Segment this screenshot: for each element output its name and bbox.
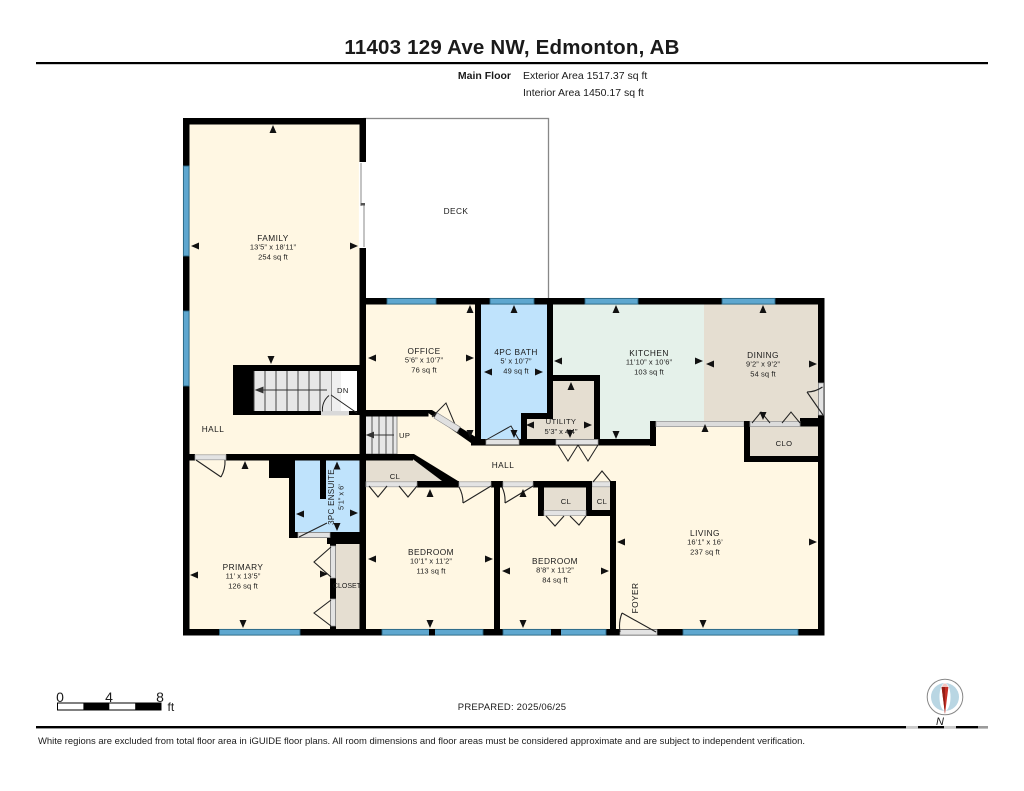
svg-text:16’1” x 16’: 16’1” x 16’: [687, 538, 723, 547]
svg-text:BEDROOM: BEDROOM: [532, 556, 578, 566]
svg-text:8’8” x 11’2”: 8’8” x 11’2”: [536, 566, 574, 575]
svg-text:11403 129 Ave NW, Edmonton, AB: 11403 129 Ave NW, Edmonton, AB: [344, 36, 679, 59]
svg-text:DN: DN: [337, 386, 349, 395]
svg-text:11’ x 13’5”: 11’ x 13’5”: [226, 572, 261, 581]
svg-text:Main Floor: Main Floor: [458, 70, 511, 82]
svg-text:CL: CL: [390, 472, 400, 481]
svg-text:126 sq ft: 126 sq ft: [228, 582, 258, 591]
svg-text:10’1” x 11’2”: 10’1” x 11’2”: [410, 557, 452, 566]
svg-text:HALL: HALL: [202, 424, 225, 434]
svg-text:254 sq ft: 254 sq ft: [258, 253, 288, 262]
svg-text:Interior Area 1450.17 sq ft: Interior Area 1450.17 sq ft: [523, 87, 644, 99]
svg-text:DINING: DINING: [747, 350, 779, 360]
svg-text:4PC BATH: 4PC BATH: [494, 347, 538, 357]
svg-text:CL: CL: [561, 497, 571, 506]
svg-text:9’2” x 9’2”: 9’2” x 9’2”: [746, 360, 780, 369]
svg-text:5’ x 10’7”: 5’ x 10’7”: [500, 357, 532, 366]
svg-text:237 sq ft: 237 sq ft: [690, 548, 720, 557]
svg-text:FAMILY: FAMILY: [257, 233, 289, 243]
svg-text:13’5” x 18’11”: 13’5” x 18’11”: [250, 243, 297, 252]
svg-text:UP: UP: [399, 431, 410, 440]
svg-text:Exterior Area 1517.37 sq ft: Exterior Area 1517.37 sq ft: [523, 70, 647, 82]
svg-text:49 sq ft: 49 sq ft: [503, 367, 529, 376]
svg-text:5’1” x 6’: 5’1” x 6’: [337, 484, 346, 510]
svg-text:ft: ft: [168, 700, 175, 714]
svg-text:PRIMARY: PRIMARY: [223, 562, 264, 572]
svg-text:11’10” x 10’6”: 11’10” x 10’6”: [626, 358, 673, 367]
svg-text:KITCHEN: KITCHEN: [629, 348, 669, 358]
svg-text:113 sq ft: 113 sq ft: [416, 567, 446, 576]
svg-text:White regions are excluded fro: White regions are excluded from total fl…: [38, 736, 805, 747]
svg-text:CLO: CLO: [776, 439, 793, 448]
svg-text:84 sq ft: 84 sq ft: [542, 576, 568, 585]
svg-text:5’3” x 4’4”: 5’3” x 4’4”: [545, 427, 578, 436]
svg-text:HALL: HALL: [492, 460, 515, 470]
svg-text:DECK: DECK: [444, 206, 469, 216]
svg-text:LIVING: LIVING: [690, 528, 720, 538]
svg-text:UTILITY: UTILITY: [546, 417, 577, 426]
svg-text:103 sq ft: 103 sq ft: [634, 368, 664, 377]
svg-text:PREPARED: 2025/06/25: PREPARED: 2025/06/25: [458, 702, 566, 713]
svg-text:76 sq ft: 76 sq ft: [411, 366, 437, 375]
svg-text:BEDROOM: BEDROOM: [408, 547, 454, 557]
svg-text:5’6” x 10’7”: 5’6” x 10’7”: [405, 356, 444, 365]
svg-text:CL: CL: [597, 497, 607, 506]
svg-text:OFFICE: OFFICE: [407, 346, 440, 356]
svg-text:CLOSET: CLOSET: [333, 583, 362, 590]
svg-text:3PC ENSUITE: 3PC ENSUITE: [327, 469, 336, 525]
svg-text:FOYER: FOYER: [630, 583, 640, 614]
svg-text:54 sq ft: 54 sq ft: [750, 370, 776, 379]
